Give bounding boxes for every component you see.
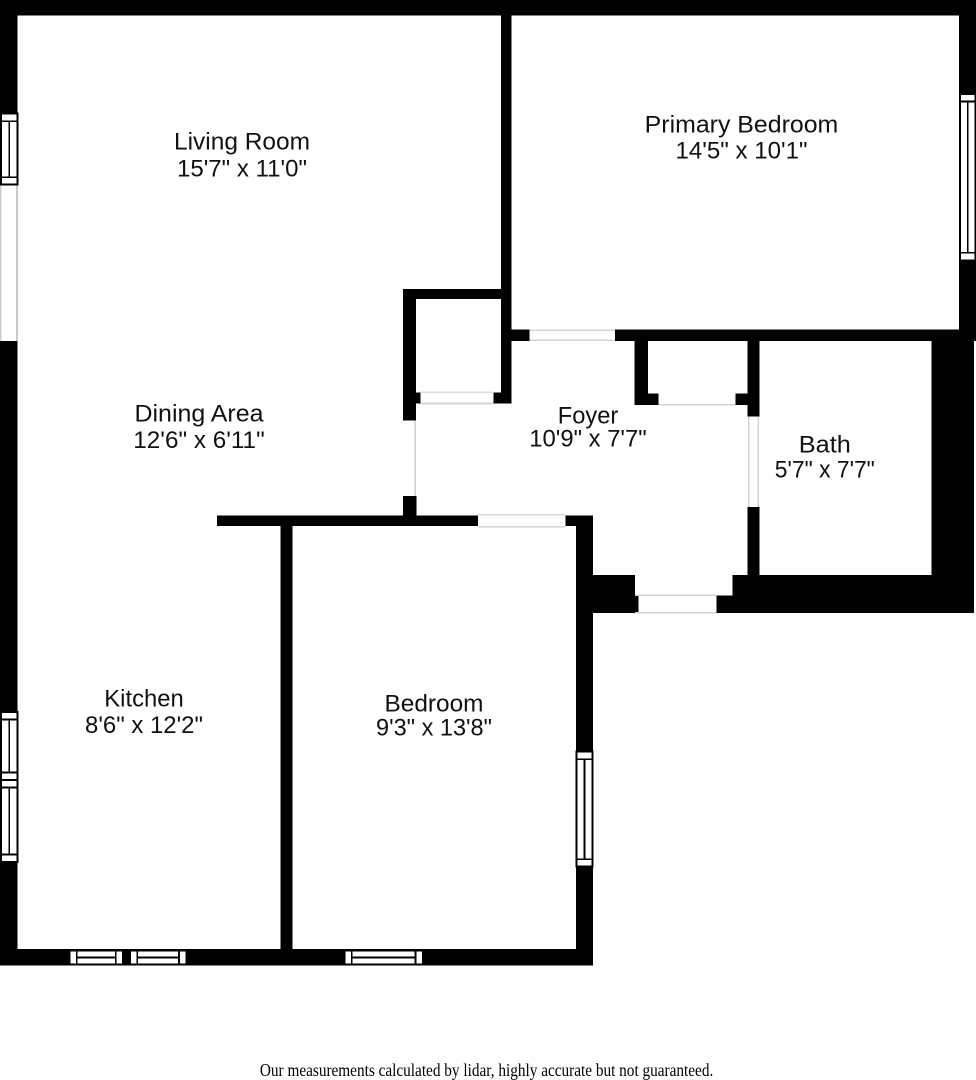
svg-text:Bath: Bath bbox=[799, 431, 851, 458]
svg-text:9'3" x 13'8": 9'3" x 13'8" bbox=[376, 714, 492, 741]
svg-text:Primary Bedroom: Primary Bedroom bbox=[645, 111, 839, 138]
svg-text:8'6" x 12'2": 8'6" x 12'2" bbox=[85, 712, 203, 739]
svg-text:14'5" x 10'1": 14'5" x 10'1" bbox=[676, 137, 808, 164]
svg-text:15'7" x 11'0": 15'7" x 11'0" bbox=[177, 156, 307, 183]
svg-text:12'6" x 6'11": 12'6" x 6'11" bbox=[133, 427, 264, 454]
svg-text:Dining Area: Dining Area bbox=[135, 401, 264, 428]
svg-text:Our measurements calculated by: Our measurements calculated by lidar, hi… bbox=[260, 1060, 713, 1080]
svg-text:10'9" x 7'7": 10'9" x 7'7" bbox=[529, 426, 646, 453]
svg-text:Kitchen: Kitchen bbox=[104, 686, 183, 713]
svg-text:Living Room: Living Room bbox=[174, 129, 310, 156]
svg-text:5'7" x 7'7": 5'7" x 7'7" bbox=[775, 456, 875, 483]
